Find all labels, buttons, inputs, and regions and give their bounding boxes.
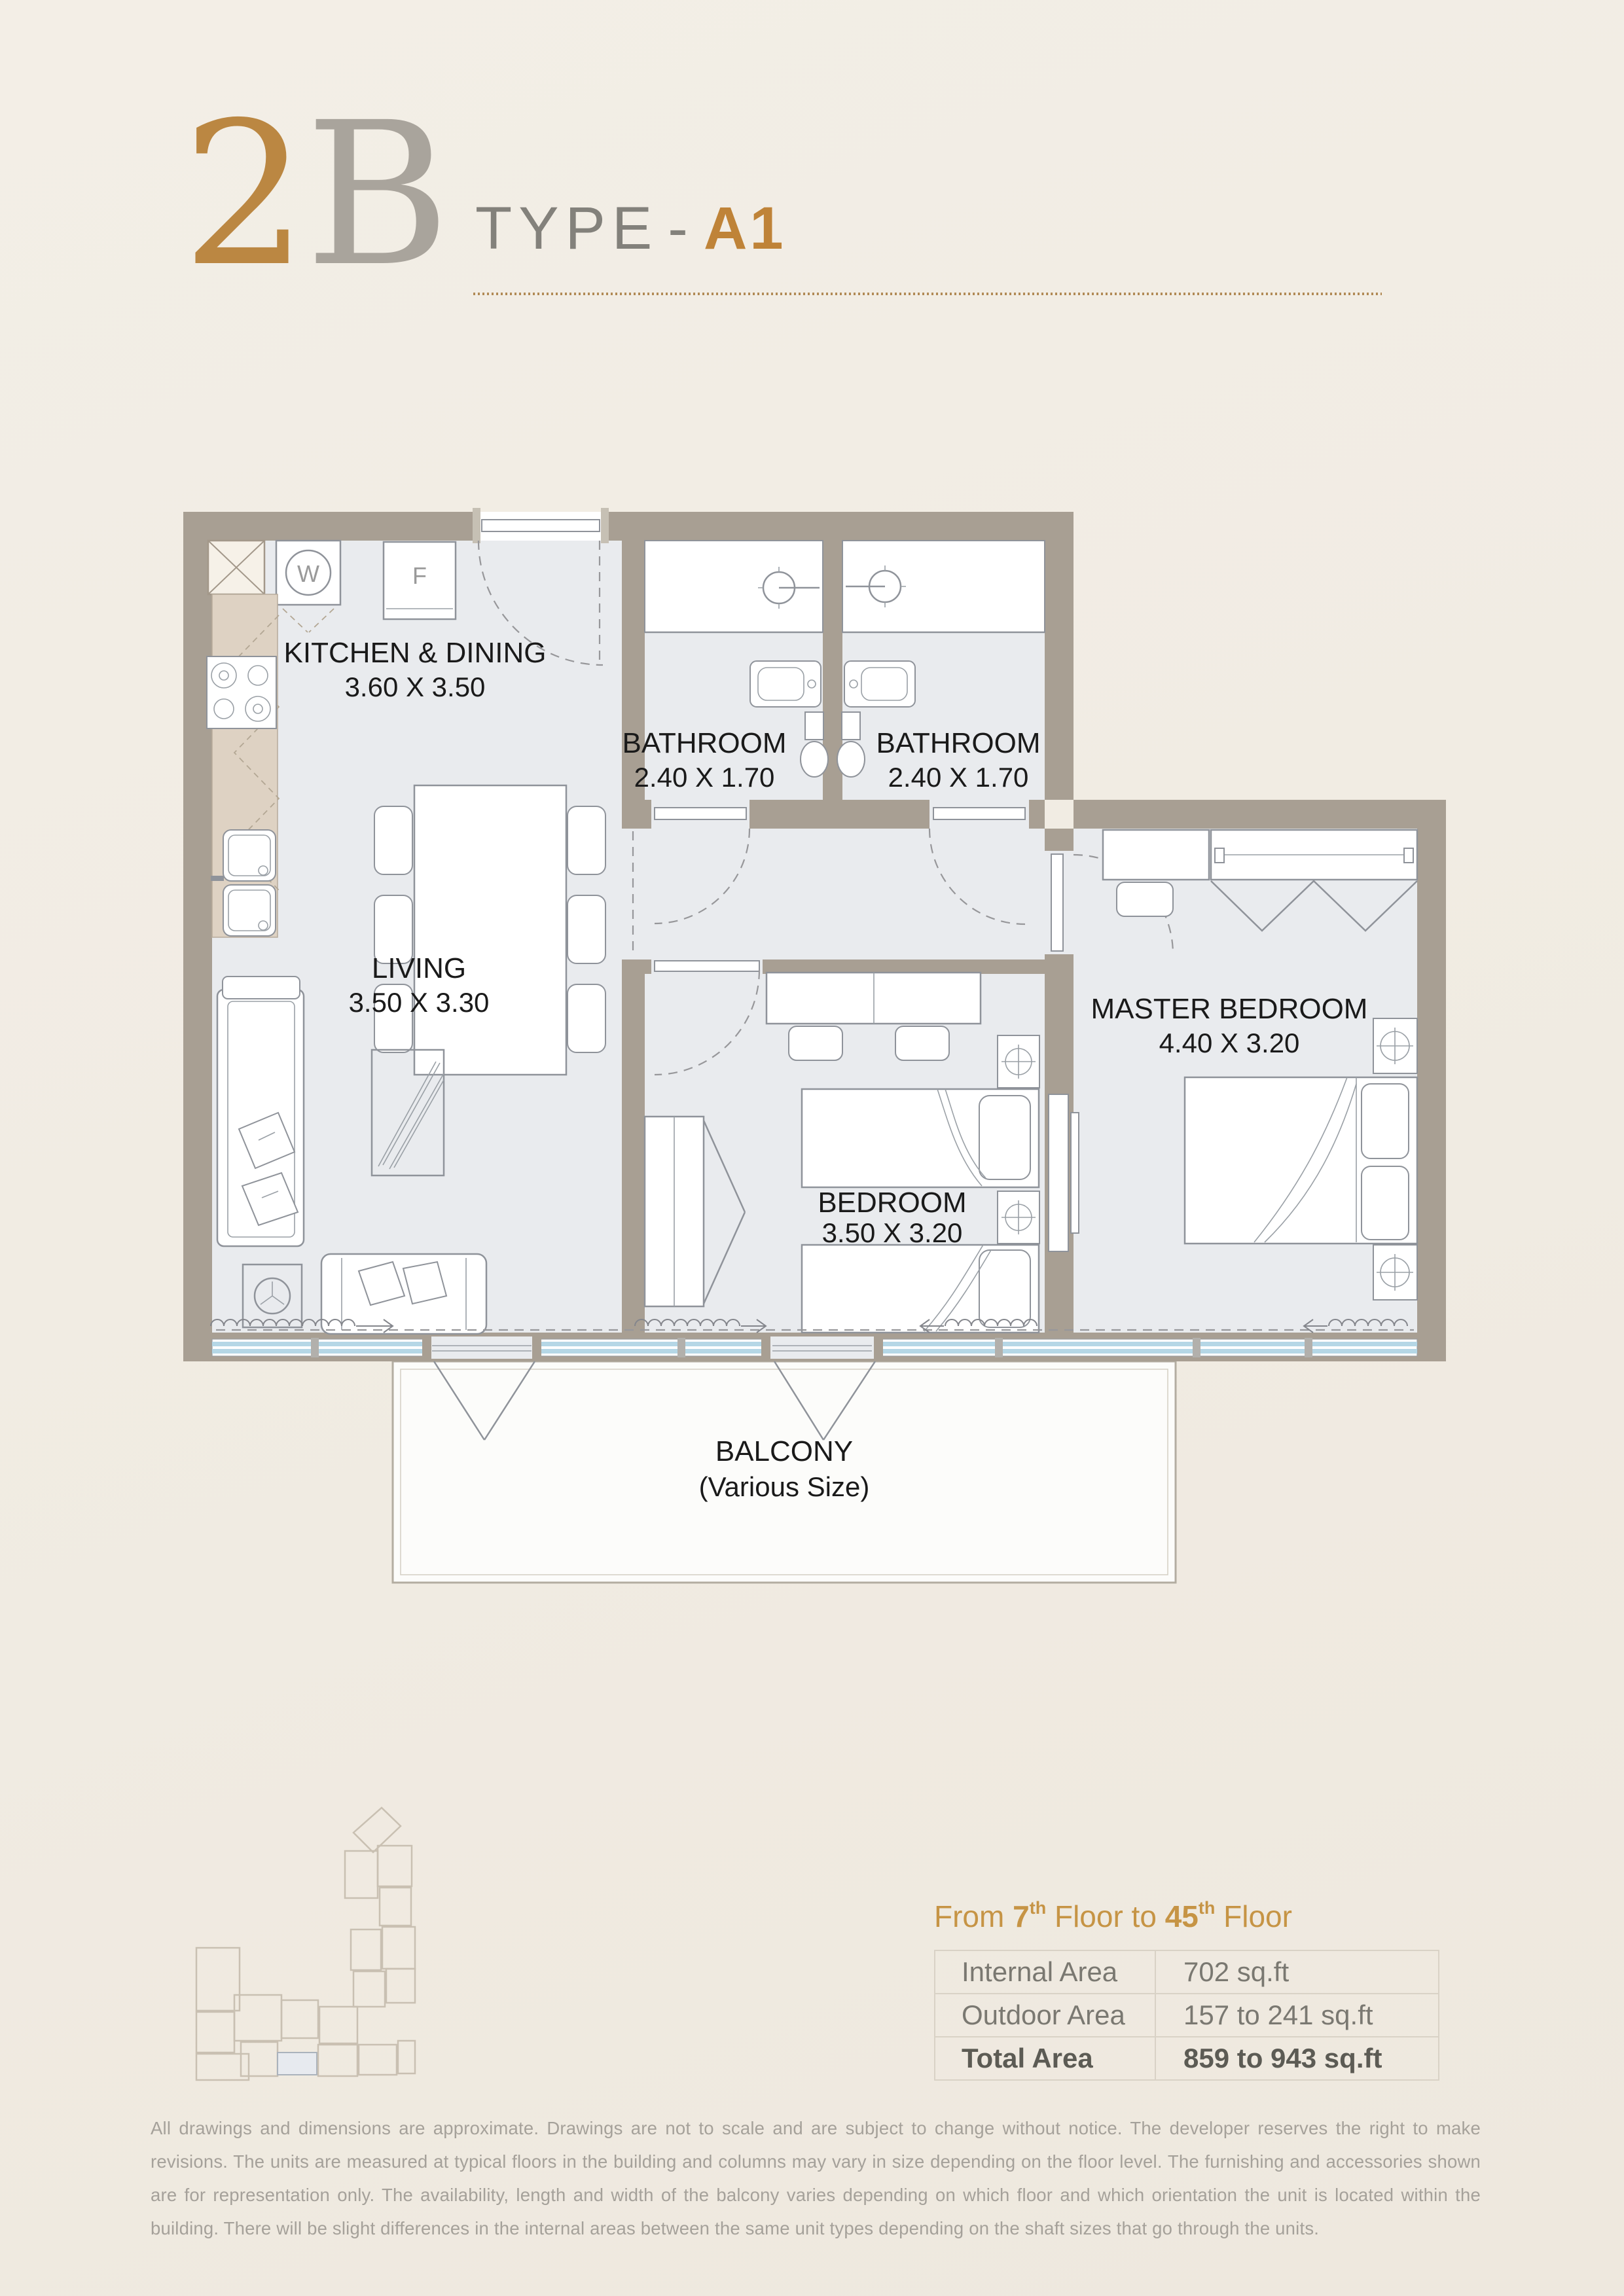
table-row: Total Area 859 to 943 sq.ft [935,2036,1438,2079]
master-label: MASTER BEDROOM [1091,993,1368,1025]
internal-area-label: Internal Area [935,1951,1156,1993]
bedroom-dims: 3.50 X 3.20 [822,1217,963,1248]
table-row: Internal Area 702 sq.ft [935,1951,1438,1993]
floor-range-middle: Floor to [1046,1899,1165,1933]
total-area-value: 859 to 943 sq.ft [1156,2043,1438,2074]
key-plan-highlighted-unit [278,2053,317,2075]
floor-range-heading: From 7th Floor to 45th Floor [934,1898,1292,1934]
bathroom1-dims: 2.40 X 1.70 [634,762,775,793]
corner-sofa [217,977,304,1246]
master-door-leaf [1051,854,1063,951]
fridge: F [384,542,456,619]
floor-range-floor-word: Floor [1215,1899,1292,1933]
shower-1 [645,541,823,632]
master-dims: 4.40 X 3.20 [1159,1028,1300,1058]
floor-range-from-word: From [934,1899,1013,1933]
kitchen-dims: 3.60 X 3.50 [345,672,486,702]
balcony-note: (Various Size) [699,1471,870,1502]
outdoor-area-value: 157 to 241 sq.ft [1156,2000,1438,2031]
entrance-door-leaf [482,520,600,531]
bathroom2-label: BATHROOM [876,727,1041,759]
key-plan [196,1808,415,2080]
bed-1 [802,1089,1039,1187]
bedroom-label: BEDROOM [818,1187,966,1219]
hob [207,656,276,728]
disclaimer-text: All drawings and dimensions are approxim… [151,2111,1481,2246]
area-table: Internal Area 702 sq.ft Outdoor Area 157… [934,1950,1439,2081]
total-area-label: Total Area [935,2037,1156,2079]
fridge-label: F [412,562,427,589]
kitchen-label: KITCHEN & DINING [284,637,547,669]
bathroom2-door-leaf [933,808,1025,819]
dining-table [374,785,605,1075]
master-bed [1185,1077,1417,1244]
table-row: Outdoor Area 157 to 241 sq.ft [935,1993,1438,2036]
sofa [321,1254,486,1334]
balcony-door-gap-living [430,1336,533,1359]
toilet-1 [805,712,823,740]
bathroom2-dims: 2.40 X 1.70 [888,762,1029,793]
balcony-door-gap-bedroom [770,1336,874,1359]
bedroom-door-leaf [655,961,759,971]
floor-range-from-number: 7 [1013,1899,1030,1933]
bathroom1-door-leaf [655,808,746,819]
washer-label: W [297,560,319,587]
internal-area-value: 702 sq.ft [1156,1956,1438,1988]
living-label: LIVING [372,952,466,984]
bathroom1-label: BATHROOM [623,727,787,759]
living-dims: 3.50 X 3.30 [349,987,490,1018]
tv-unit [1049,1094,1079,1251]
floor-range-from-ordinal: th [1030,1898,1046,1918]
toilet-2 [842,712,860,740]
outdoor-area-label: Outdoor Area [935,1994,1156,2036]
balcony-label: BALCONY [715,1435,853,1467]
floor-range-to-number: 45 [1165,1899,1199,1933]
floor-range-to-ordinal: th [1199,1898,1215,1918]
floorplan-page: { "title": { "number": "2", "letter": "B… [0,0,1624,2296]
